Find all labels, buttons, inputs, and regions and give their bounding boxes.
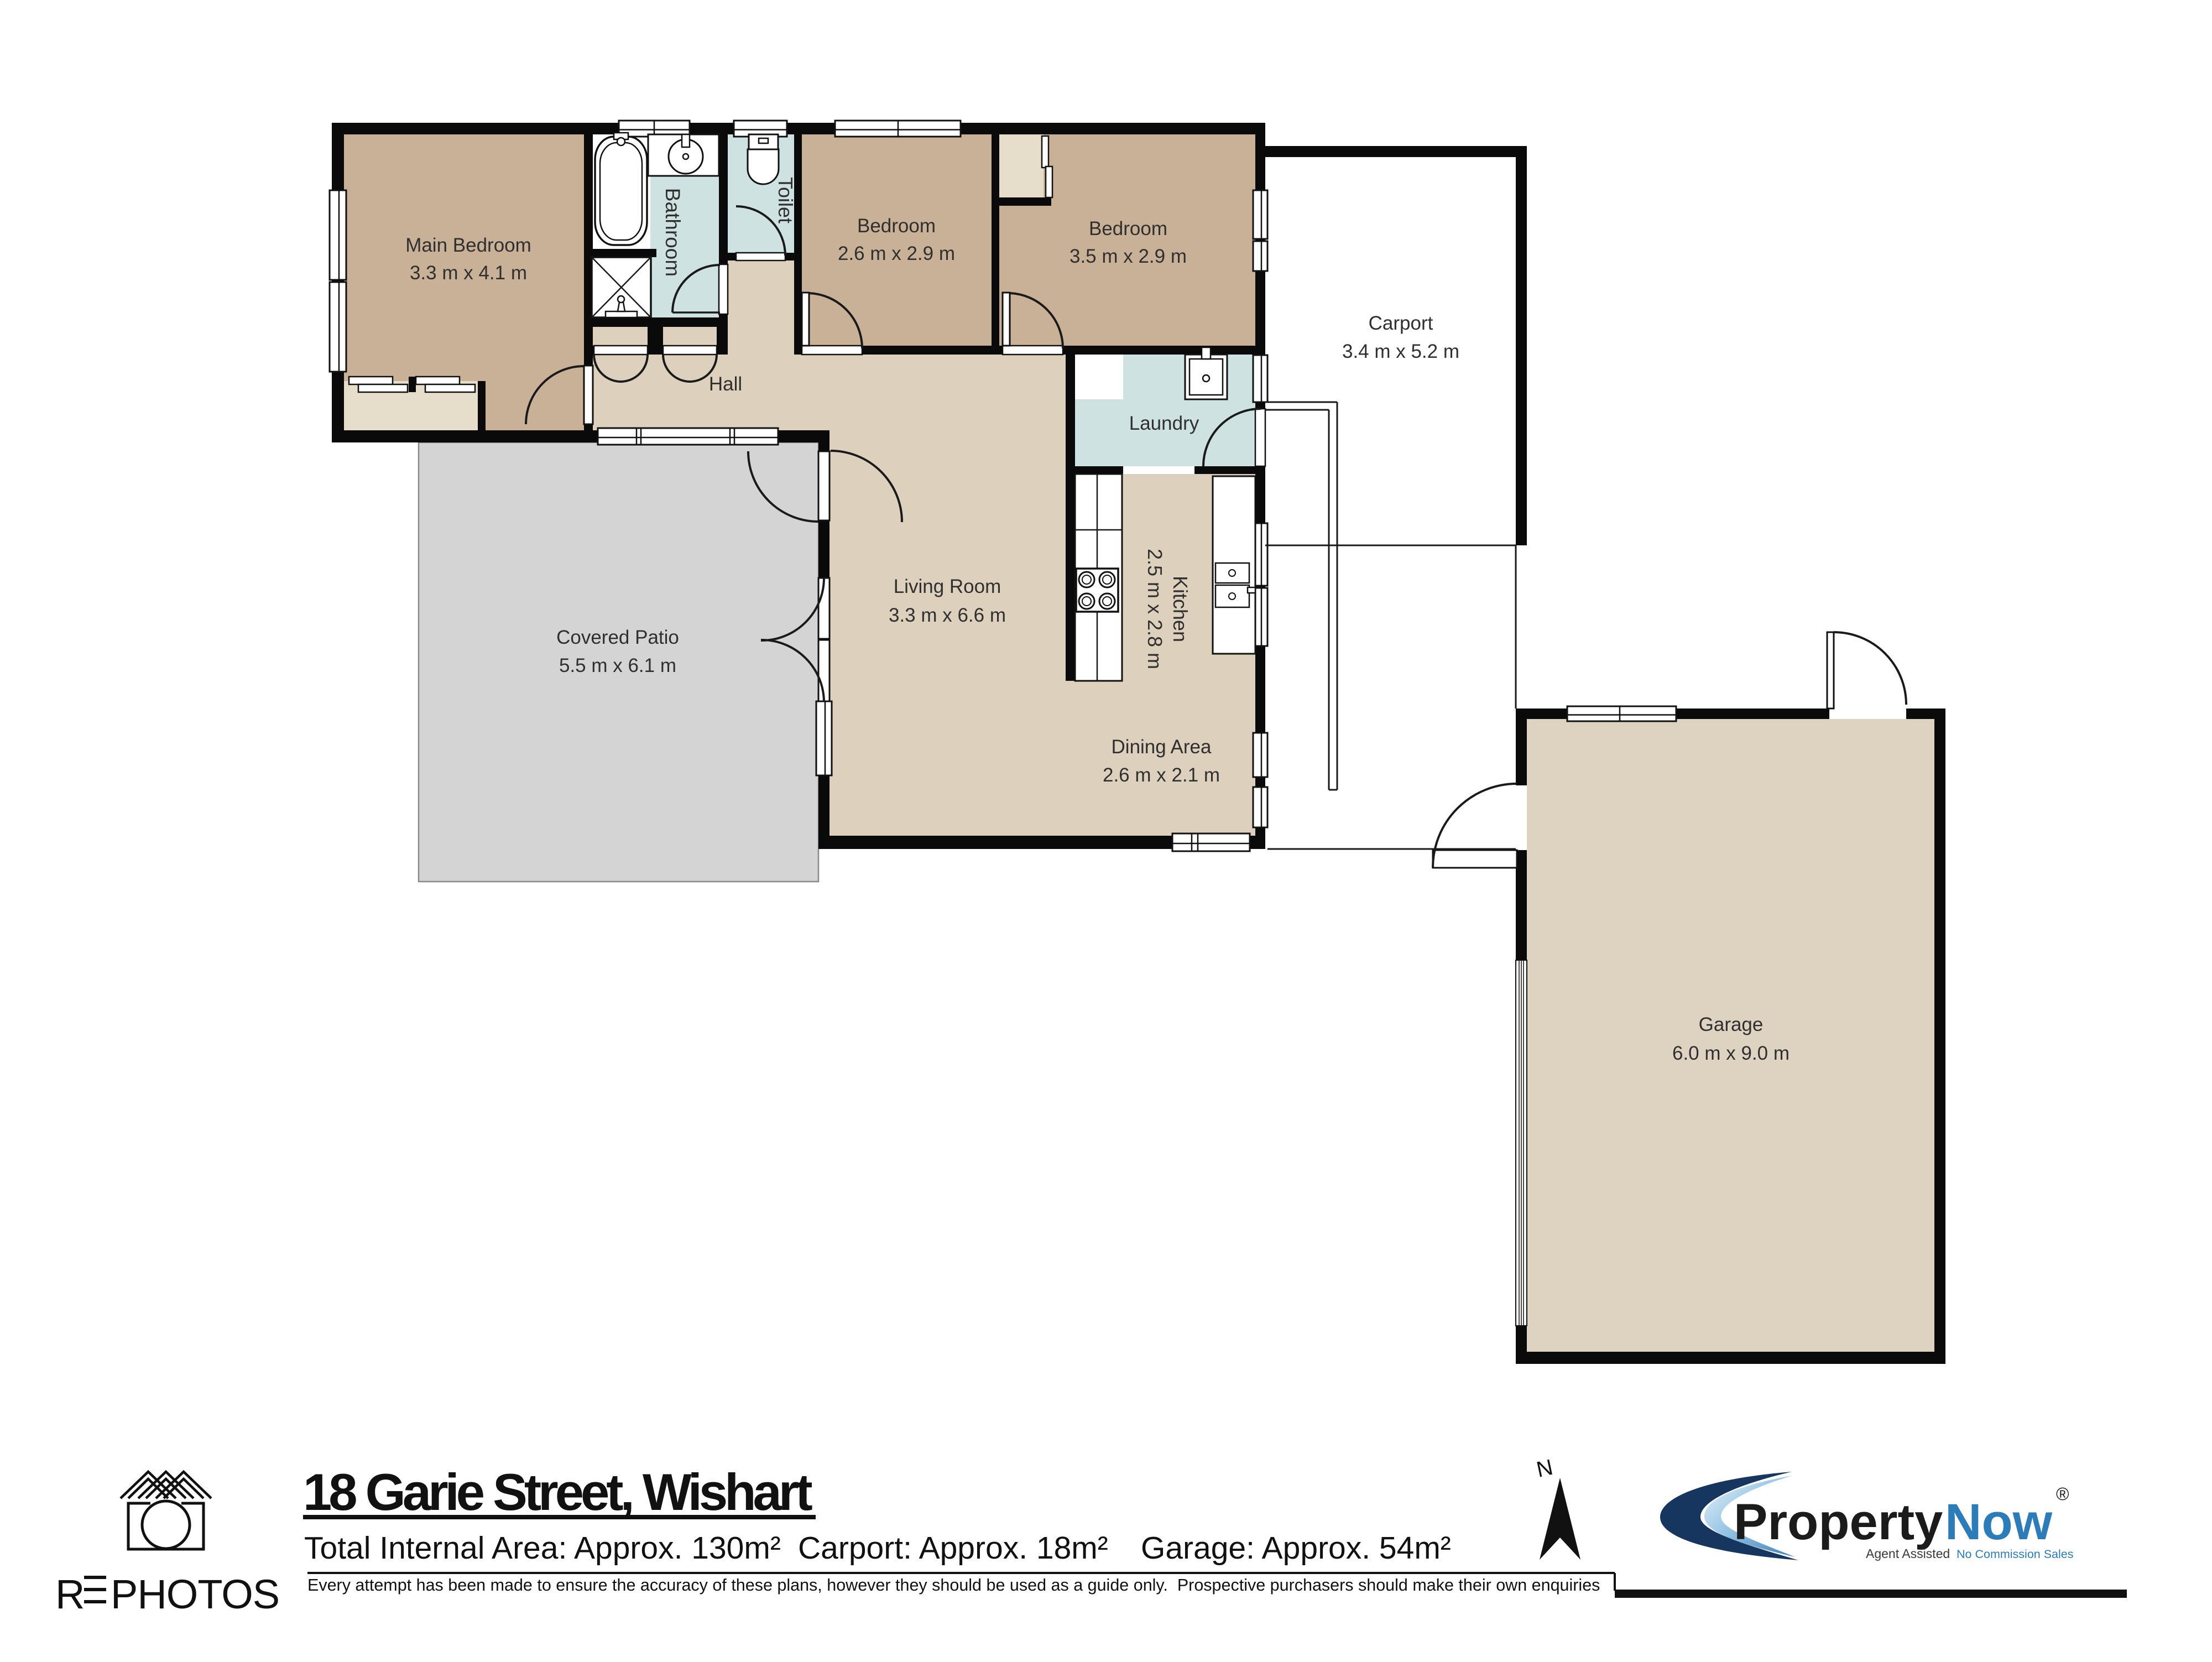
svg-text:5.5 m x 6.1 m: 5.5 m x 6.1 m bbox=[559, 655, 676, 676]
svg-text:2.6 m x 2.9 m: 2.6 m x 2.9 m bbox=[838, 243, 955, 264]
svg-text:Covered Patio: Covered Patio bbox=[556, 627, 679, 648]
svg-text:PHOTOS: PHOTOS bbox=[111, 1571, 279, 1617]
svg-text:Now: Now bbox=[1945, 1494, 2053, 1550]
svg-text:18 Garie Street, Wishart: 18 Garie Street, Wishart bbox=[303, 1463, 812, 1521]
svg-text:Bathroom: Bathroom bbox=[661, 188, 684, 277]
svg-text:Agent Assisted: Agent Assisted bbox=[1866, 1546, 1950, 1561]
svg-text:Bedroom: Bedroom bbox=[857, 215, 936, 237]
svg-text:Main Bedroom: Main Bedroom bbox=[405, 235, 531, 256]
svg-text:Laundry: Laundry bbox=[1129, 413, 1199, 434]
svg-text:Bedroom: Bedroom bbox=[1089, 218, 1167, 239]
svg-text:Garage: Garage bbox=[1699, 1014, 1764, 1035]
svg-text:Total Internal Area: Approx. 1: Total Internal Area: Approx. 130m² bbox=[304, 1530, 781, 1566]
svg-text:2.6 m x 2.1 m: 2.6 m x 2.1 m bbox=[1103, 764, 1220, 786]
svg-text:Property: Property bbox=[1734, 1494, 1943, 1550]
svg-text:3.3 m x 4.1 m: 3.3 m x 4.1 m bbox=[410, 262, 527, 284]
svg-text:No Commission Sales: No Commission Sales bbox=[1957, 1548, 2073, 1561]
svg-text:3.4 m x 5.2 m: 3.4 m x 5.2 m bbox=[1342, 341, 1459, 362]
svg-text:R: R bbox=[55, 1571, 85, 1617]
svg-text:Carport: Approx. 18m²: Carport: Approx. 18m² bbox=[798, 1530, 1108, 1566]
svg-text:®: ® bbox=[2056, 1484, 2069, 1504]
svg-text:6.0 m x 9.0 m: 6.0 m x 9.0 m bbox=[1672, 1043, 1790, 1064]
svg-text:3.3 m x 6.6 m: 3.3 m x 6.6 m bbox=[889, 605, 1006, 626]
svg-text:Toilet: Toilet bbox=[774, 177, 797, 223]
svg-text:Hall: Hall bbox=[709, 373, 742, 395]
svg-text:Garage: Approx. 54m²: Garage: Approx. 54m² bbox=[1141, 1530, 1451, 1566]
svg-text:3.5 m x 2.9 m: 3.5 m x 2.9 m bbox=[1070, 246, 1187, 267]
svg-text:Carport: Carport bbox=[1369, 312, 1433, 334]
svg-text:2.5 m x 2.8 m: 2.5 m x 2.8 m bbox=[1144, 549, 1166, 669]
svg-text:Kitchen: Kitchen bbox=[1169, 576, 1192, 642]
svg-text:Every attempt has been made to: Every attempt has been made to ensure th… bbox=[307, 1576, 1600, 1595]
svg-text:Dining Area: Dining Area bbox=[1112, 736, 1212, 758]
svg-text:Living Room: Living Room bbox=[894, 576, 1001, 597]
